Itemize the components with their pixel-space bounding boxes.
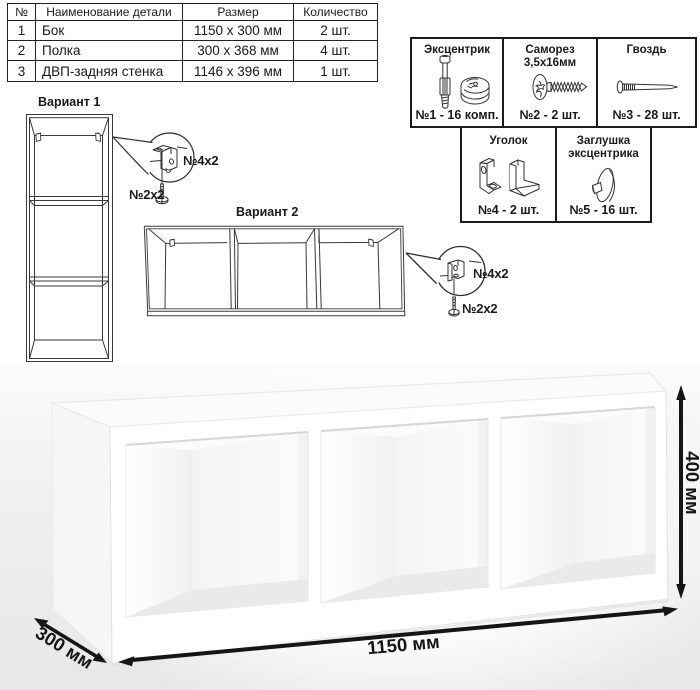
svg-text:400 мм: 400 мм bbox=[682, 451, 700, 514]
